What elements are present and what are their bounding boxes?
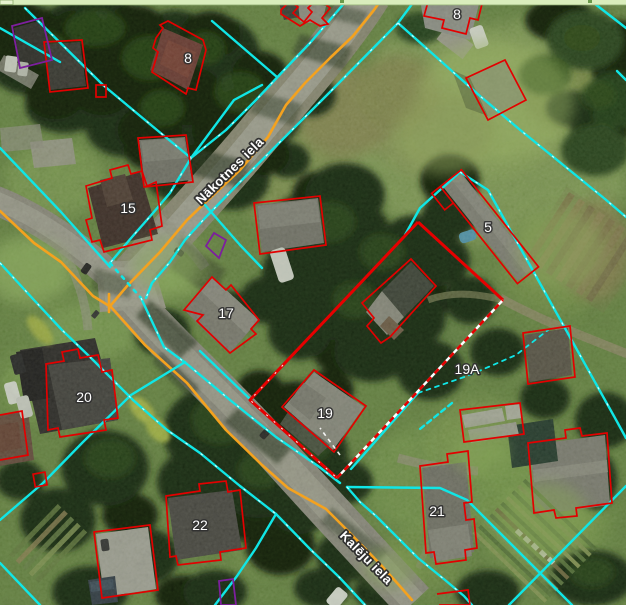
svg-text:17: 17 bbox=[218, 305, 234, 321]
svg-text:8: 8 bbox=[184, 50, 192, 66]
svg-text:8: 8 bbox=[453, 6, 461, 22]
svg-text:19: 19 bbox=[317, 405, 333, 421]
svg-text:15: 15 bbox=[120, 200, 136, 216]
svg-text:5: 5 bbox=[484, 219, 492, 235]
svg-text:19A: 19A bbox=[455, 361, 481, 377]
svg-text:22: 22 bbox=[192, 517, 208, 533]
svg-text:21: 21 bbox=[429, 503, 445, 519]
svg-text:20: 20 bbox=[76, 389, 92, 405]
